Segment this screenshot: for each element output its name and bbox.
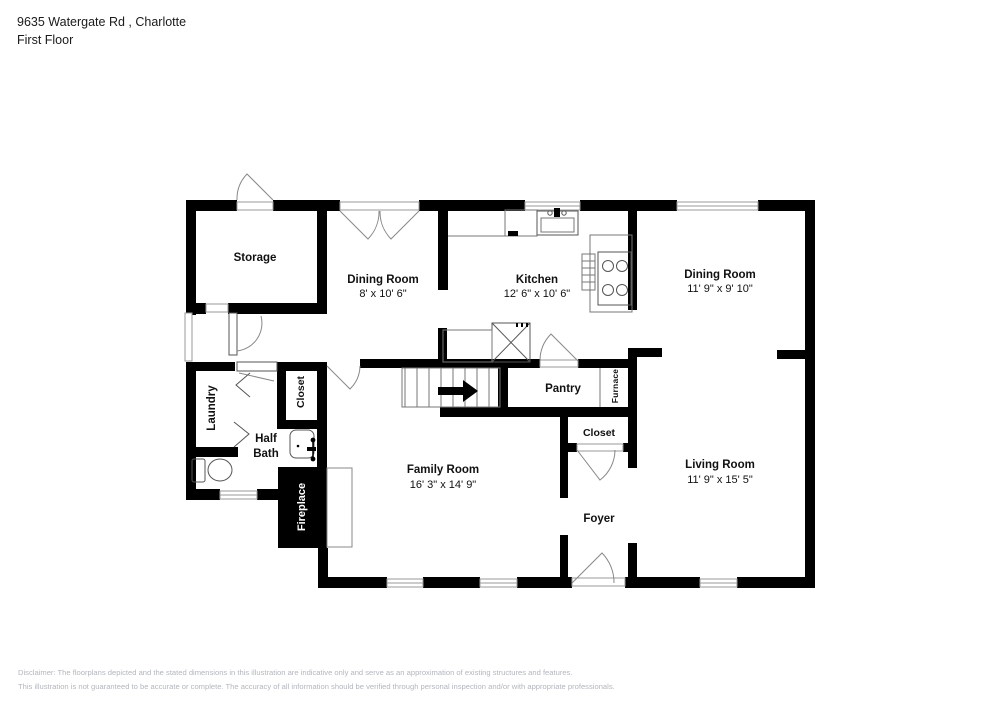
floorplan-page: 9635 Watergate Rd , Charlotte First Floo… — [0, 0, 1000, 707]
hall-closet-door-arc — [327, 366, 360, 389]
bifold-door-icon — [236, 373, 250, 397]
room-label-laundry: Laundry — [206, 385, 218, 430]
floor-plan-drawing — [0, 0, 1000, 707]
disclaimer-line-1: Disclaimer: The floorplans depicted and … — [18, 668, 573, 677]
room-label-pantry: Pantry — [545, 383, 581, 395]
room-label-foyer-closet: Closet — [583, 427, 615, 439]
room-label-fireplace: Fireplace — [296, 483, 308, 531]
french-door-right-arc — [380, 211, 419, 239]
hearth — [327, 468, 352, 547]
front-door-threshold — [572, 578, 625, 586]
room-label-foyer: Foyer — [583, 513, 614, 525]
foyer-closet-door-arc — [577, 450, 615, 480]
room-dims-living-room: 11' 9" x 15' 5" — [687, 474, 753, 486]
room-dims-dining-left: 8' x 10' 6" — [359, 288, 406, 300]
kitchen-sink-icon — [537, 208, 578, 235]
room-label-furnace: Furnace — [610, 369, 620, 403]
floor-title: First Floor — [17, 33, 73, 47]
address-title: 9635 Watergate Rd , Charlotte — [17, 15, 186, 29]
disclaimer-line-2: This illustration is not guaranteed to b… — [18, 682, 615, 691]
room-label-living-room: Living Room — [685, 459, 755, 471]
refrigerator-icon — [492, 323, 530, 362]
foyer-closet-threshold — [577, 444, 623, 451]
laundry-door-swing — [239, 373, 274, 381]
kitchen-fixtures — [443, 208, 632, 407]
room-label-family-room: Family Room — [407, 464, 479, 476]
storage-hall-door-threshold — [206, 304, 228, 312]
storage-hall-door-arc — [237, 316, 262, 351]
room-label-dining-left: Dining Room — [347, 274, 419, 286]
side-window — [185, 313, 192, 361]
room-dims-family-room: 16' 3" x 14' 9" — [410, 479, 476, 491]
stove-icon — [590, 235, 632, 312]
laundry-door-leaf — [237, 362, 277, 371]
doors — [206, 174, 625, 586]
storage-exterior-door-arc — [237, 174, 273, 200]
room-dims-dining-right: 11' 9" x 9' 10" — [687, 283, 753, 295]
french-door-left-arc — [340, 211, 379, 239]
french-door-threshold — [340, 202, 419, 210]
pantry-door-threshold — [540, 360, 578, 367]
storage-exterior-door-threshold — [237, 202, 273, 210]
kitchen-vent-icon — [582, 254, 595, 290]
room-label-storage: Storage — [234, 252, 277, 264]
toilet-icon — [192, 459, 232, 482]
kitchen-counter — [443, 330, 492, 362]
bathroom-sink-icon — [290, 430, 316, 461]
room-dims-kitchen: 12' 6" x 10' 6" — [504, 288, 570, 300]
storage-hall-door-leaf — [229, 313, 237, 355]
pantry-door-arc — [540, 334, 578, 361]
stairs-direction-arrow-icon — [438, 380, 478, 402]
room-label-half-bath: Half Bath — [244, 432, 288, 462]
room-label-dining-right: Dining Room — [684, 269, 756, 281]
room-label-kitchen: Kitchen — [516, 274, 558, 286]
staircase — [402, 368, 500, 407]
room-label-hall-closet: Closet — [295, 376, 307, 408]
